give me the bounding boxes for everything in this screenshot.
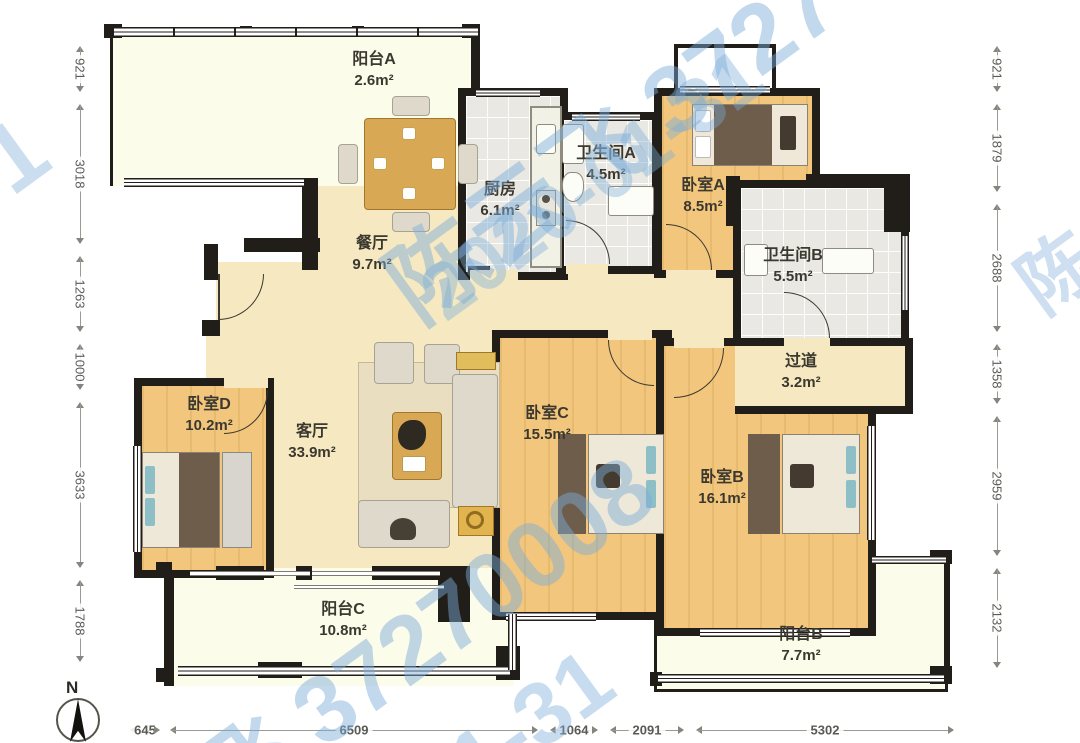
window bbox=[508, 614, 517, 670]
wall-segment bbox=[302, 178, 318, 270]
label-bath-a: 卫生间A 4.5m² bbox=[576, 144, 636, 184]
room-name: 卧室B bbox=[698, 468, 746, 489]
kitchen-sink bbox=[536, 124, 556, 154]
room-area: 7.7m² bbox=[779, 646, 823, 666]
door-opening bbox=[784, 338, 830, 348]
room-area: 15.5m² bbox=[523, 425, 571, 445]
room-area: 10.2m² bbox=[185, 416, 233, 436]
label-bedroom-c: 卧室C 15.5m² bbox=[523, 404, 571, 444]
dimension-right-5: 2959 bbox=[989, 412, 1005, 560]
dimension-right-6: 2132 bbox=[989, 564, 1005, 672]
window bbox=[572, 113, 640, 121]
room-area: 8.5m² bbox=[681, 197, 725, 217]
pillow bbox=[145, 498, 155, 526]
sofa-long bbox=[452, 374, 498, 508]
bed-blanket bbox=[714, 105, 772, 165]
dimension-left-5: 3633 bbox=[72, 398, 88, 572]
pillow bbox=[695, 110, 711, 132]
label-bedroom-b: 卧室B 16.1m² bbox=[698, 468, 746, 508]
window bbox=[901, 236, 909, 310]
dimension-value: 1788 bbox=[73, 604, 88, 639]
dimension-value: 1064 bbox=[556, 723, 593, 738]
label-balcony-b: 阳台B 7.7m² bbox=[779, 625, 823, 665]
watermark-text: 01 bbox=[0, 101, 65, 241]
cushion-icon bbox=[390, 518, 416, 540]
dimension-bottom-1: 645 bbox=[126, 722, 164, 738]
room-name: 过道 bbox=[781, 352, 820, 373]
wardrobe-bedroom-b bbox=[748, 434, 780, 534]
floorplan-canvas: 阳台A 2.6m² 厨房 6.1m² 卫生间A 4.5m² 卧室A 8.5m² … bbox=[0, 0, 1080, 743]
armchair bbox=[374, 342, 414, 384]
room-area: 16.1m² bbox=[698, 489, 746, 509]
room-area: 5.5m² bbox=[763, 267, 823, 287]
dimension-value: 1263 bbox=[73, 277, 88, 312]
dimension-value: 2132 bbox=[990, 601, 1005, 636]
floor-corridor-a bbox=[560, 272, 662, 334]
window bbox=[658, 674, 944, 683]
window bbox=[178, 666, 510, 676]
door-leaf-entry bbox=[218, 274, 220, 320]
dimension-value: 921 bbox=[73, 55, 88, 83]
label-kitchen: 厨房 6.1m² bbox=[480, 180, 519, 220]
pillow bbox=[646, 480, 656, 508]
label-hallway: 过道 3.2m² bbox=[781, 352, 820, 392]
sliding-door bbox=[312, 571, 440, 576]
room-name: 阳台C bbox=[319, 600, 367, 621]
door-opening bbox=[566, 264, 608, 274]
pillow bbox=[695, 136, 711, 158]
dimension-bottom-4: 2091 bbox=[606, 722, 688, 738]
dimension-value: 921 bbox=[990, 55, 1005, 83]
label-living: 客厅 33.9m² bbox=[288, 422, 336, 462]
wall-post bbox=[156, 668, 172, 682]
window bbox=[124, 178, 304, 187]
door-opening bbox=[666, 270, 716, 280]
tray-icon bbox=[402, 456, 426, 472]
room-area: 3.2m² bbox=[781, 373, 820, 393]
dimension-value: 2959 bbox=[990, 469, 1005, 504]
sliding-door bbox=[190, 571, 310, 576]
bath-b-tub bbox=[822, 248, 874, 274]
dimension-value: 1879 bbox=[990, 131, 1005, 166]
burner-icon bbox=[542, 211, 550, 219]
kitchen-stove bbox=[536, 190, 556, 226]
label-balcony-c: 阳台C 10.8m² bbox=[319, 600, 367, 640]
dimension-value: 2091 bbox=[629, 723, 666, 738]
dimension-left-6: 1788 bbox=[72, 576, 88, 666]
wardrobe-bedroom-d bbox=[222, 452, 252, 548]
dimension-value: 6509 bbox=[336, 723, 373, 738]
plate-icon bbox=[373, 157, 387, 170]
room-name: 卧室A bbox=[681, 176, 725, 197]
dining-chair bbox=[392, 212, 430, 232]
plate-icon bbox=[431, 157, 445, 170]
bed-cushion bbox=[790, 464, 814, 488]
wall-post bbox=[202, 320, 220, 336]
window bbox=[872, 556, 946, 564]
label-bedroom-a: 卧室A 8.5m² bbox=[681, 176, 725, 216]
door-opening bbox=[470, 270, 518, 280]
label-balcony-a: 阳台A 2.6m² bbox=[352, 50, 396, 90]
window bbox=[476, 89, 540, 97]
bed-blanket bbox=[179, 453, 219, 547]
dimension-value: 1000 bbox=[73, 350, 88, 385]
bath-a-tub bbox=[608, 186, 654, 216]
room-area: 6.1m² bbox=[480, 201, 519, 221]
pillow bbox=[646, 446, 656, 474]
label-bath-b: 卫生间B 5.5m² bbox=[763, 246, 823, 286]
burner-icon bbox=[542, 195, 550, 203]
dimension-value: 645 bbox=[130, 723, 160, 738]
bed-runner bbox=[780, 116, 796, 150]
room-area: 9.7m² bbox=[352, 255, 391, 275]
dimension-value: 3633 bbox=[73, 468, 88, 503]
pillow bbox=[846, 446, 856, 474]
dining-table bbox=[364, 118, 456, 210]
room-area: 4.5m² bbox=[576, 165, 636, 185]
room-name: 厨房 bbox=[480, 180, 519, 201]
plant-icon bbox=[398, 420, 426, 450]
dimension-value: 5302 bbox=[807, 723, 844, 738]
window bbox=[867, 426, 876, 540]
room-area: 33.9m² bbox=[288, 443, 336, 463]
room-name: 阳台B bbox=[779, 625, 823, 646]
wall-segment bbox=[726, 176, 740, 226]
plate-icon bbox=[402, 127, 416, 140]
wall-post bbox=[156, 562, 172, 576]
room-name: 客厅 bbox=[288, 422, 336, 443]
dimension-right-4: 1358 bbox=[989, 340, 1005, 408]
sliding-door bbox=[294, 585, 444, 589]
dimension-value: 3018 bbox=[73, 157, 88, 192]
room-name: 餐厅 bbox=[352, 234, 391, 255]
window bbox=[506, 612, 596, 621]
label-bedroom-d: 卧室D 10.2m² bbox=[185, 395, 233, 435]
window bbox=[680, 86, 770, 94]
console-table bbox=[456, 352, 496, 370]
dimension-bottom-2: 6509 bbox=[166, 722, 542, 738]
dimension-right-3: 2688 bbox=[989, 200, 1005, 336]
door-opening bbox=[608, 330, 652, 340]
label-dining: 餐厅 9.7m² bbox=[352, 234, 391, 274]
window bbox=[112, 27, 478, 37]
room-hallway bbox=[735, 338, 913, 414]
window bbox=[700, 628, 850, 637]
room-name: 卧室C bbox=[523, 404, 571, 425]
watermark-text: 陈 bbox=[1006, 221, 1080, 327]
dimension-left-3: 1263 bbox=[72, 252, 88, 336]
plate-icon bbox=[402, 187, 416, 200]
room-name: 阳台A bbox=[352, 50, 396, 71]
floor-corridor-b bbox=[458, 276, 568, 334]
dimension-bottom-5: 5302 bbox=[692, 722, 958, 738]
door-opening bbox=[224, 378, 268, 388]
dining-chair bbox=[458, 144, 478, 184]
wall-segment bbox=[244, 238, 320, 252]
wall-post bbox=[884, 174, 910, 232]
room-name: 卫生间B bbox=[763, 246, 823, 267]
bowl-icon bbox=[466, 511, 484, 529]
dimension-left-2: 3018 bbox=[72, 100, 88, 248]
pillow bbox=[145, 466, 155, 494]
room-name: 卧室D bbox=[185, 395, 233, 416]
dimension-value: 1358 bbox=[990, 357, 1005, 392]
dining-chair bbox=[338, 144, 358, 184]
wall-segment bbox=[944, 560, 950, 680]
dining-chair bbox=[392, 96, 430, 116]
compass-north-label: N bbox=[66, 678, 78, 698]
wall-segment bbox=[204, 244, 218, 280]
room-area: 2.6m² bbox=[352, 71, 396, 91]
door-opening bbox=[674, 338, 724, 348]
window bbox=[133, 446, 142, 552]
room-area: 10.8m² bbox=[319, 621, 367, 641]
dimension-left-4: 1000 bbox=[72, 340, 88, 394]
dimension-right-2: 1879 bbox=[989, 100, 1005, 196]
dimension-left-1: 921 bbox=[72, 42, 88, 96]
wardrobe-bedroom-c bbox=[558, 434, 586, 534]
wall-segment bbox=[438, 566, 470, 622]
dimension-value: 2688 bbox=[990, 251, 1005, 286]
bed-cushion bbox=[596, 464, 620, 488]
dimension-right-1: 921 bbox=[989, 42, 1005, 96]
pillow bbox=[846, 480, 856, 508]
dimension-bottom-3: 1064 bbox=[546, 722, 602, 738]
room-name: 卫生间A bbox=[576, 144, 636, 165]
